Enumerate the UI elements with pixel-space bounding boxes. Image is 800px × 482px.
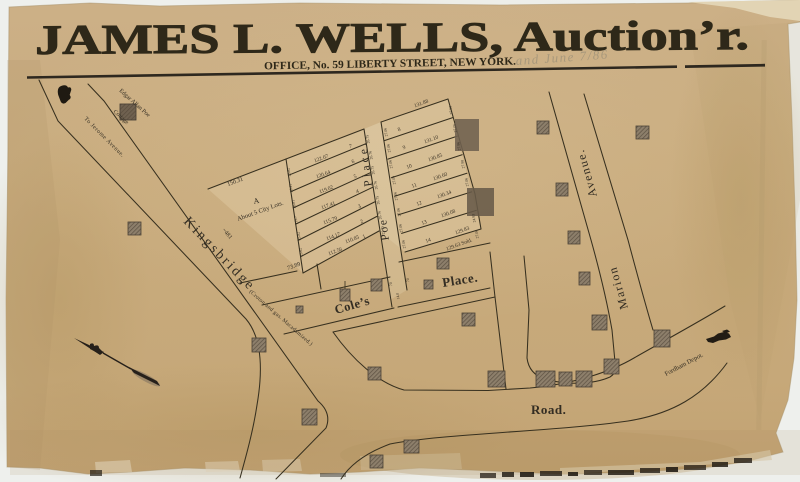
svg-text:JAMES L. WELLS, Auction’r.: JAMES L. WELLS, Auction’r.: [35, 13, 749, 64]
svg-text:Road.: Road.: [531, 402, 566, 417]
svg-text:70: 70: [406, 278, 411, 282]
svg-text:70: 70: [389, 282, 394, 286]
